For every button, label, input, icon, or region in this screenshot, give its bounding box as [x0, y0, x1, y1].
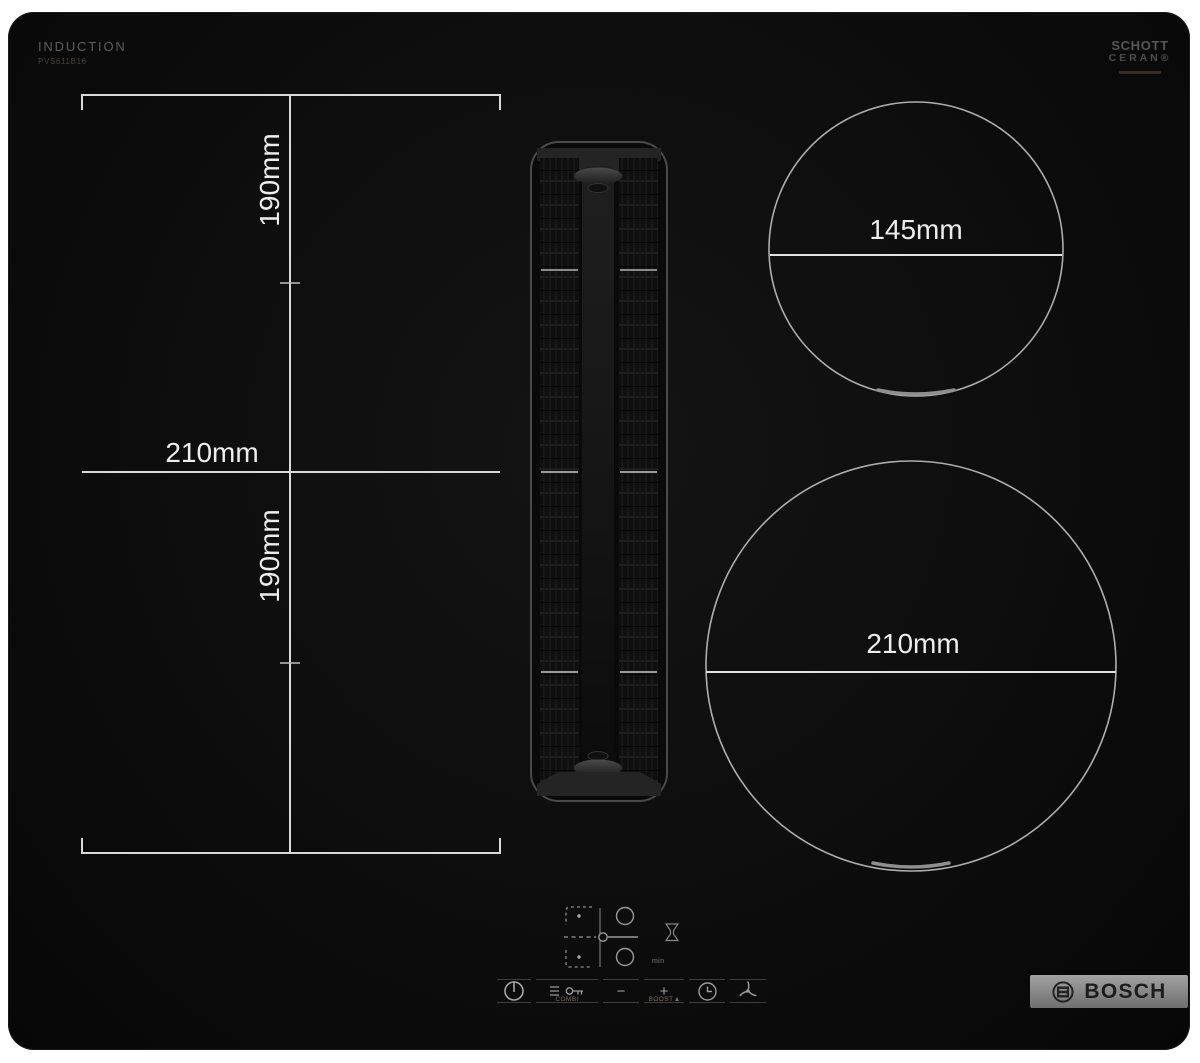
minus-button[interactable]: − [603, 979, 639, 1003]
right-front-zone-icon [617, 949, 634, 966]
vent-grille-right [619, 158, 658, 782]
child-lock-button[interactable]: COMBI [536, 979, 598, 1003]
boost-indicator-icon [675, 997, 679, 1001]
boost-label: BOOST [649, 996, 674, 1003]
touch-control-panel: COMBI − + BOOST [497, 979, 766, 1003]
power-button[interactable] [497, 979, 531, 1003]
vent-top-knob [574, 168, 622, 185]
dimension-right-front: 210mm [853, 629, 973, 659]
bosch-armature-icon [1051, 980, 1075, 1004]
ventilation-button[interactable] [730, 979, 766, 1003]
timer-min-label: min [652, 958, 664, 965]
minus-symbol: − [617, 984, 626, 999]
vent-grille-left [540, 158, 579, 782]
combi-label: COMBI [536, 996, 598, 1003]
zone-selector-graphic [555, 898, 705, 978]
power-icon [503, 980, 525, 1002]
product-image: INDUCTION PVS611B16 SCHOTT CERAN® 190mm … [0, 0, 1200, 1063]
vent-module [525, 136, 675, 808]
timer-button[interactable] [689, 979, 725, 1003]
bosch-logo-text: BOSCH [1084, 980, 1166, 1004]
vent-hub-icon [599, 933, 607, 941]
dimension-left-front: 190mm [255, 496, 285, 616]
dimension-left-width: 210mm [152, 438, 272, 468]
plus-boost-button[interactable]: + BOOST [644, 979, 684, 1003]
bosch-badge: BOSCH [1030, 975, 1188, 1008]
grease-filter-icon [666, 924, 678, 941]
dimension-right-rear: 145mm [856, 215, 976, 245]
vent-bottom-cap [537, 772, 661, 796]
dimension-left-rear: 190mm [255, 120, 285, 240]
vent-centre-bar [582, 166, 614, 768]
fan-icon [737, 980, 759, 1002]
clock-icon [697, 981, 718, 1002]
right-rear-zone-icon [617, 908, 634, 925]
